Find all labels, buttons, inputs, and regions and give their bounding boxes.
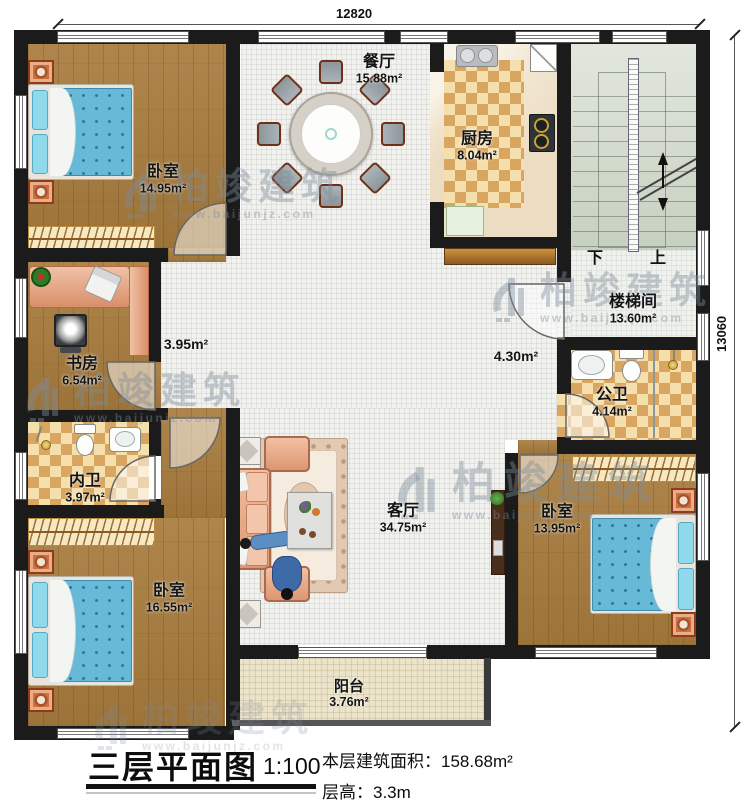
computer-monitor	[54, 314, 87, 347]
person-sitting	[272, 556, 302, 592]
floor-plan-canvas: 柏竣建筑www.baijunjz.com 柏竣建筑www.baijunjz.co…	[0, 0, 750, 812]
dimension-top-value: 12820	[336, 6, 372, 21]
room-label-study: 书房6.54m²	[62, 356, 102, 389]
pillow	[678, 522, 694, 564]
window	[515, 31, 600, 43]
wall	[14, 505, 164, 518]
kitchen-sink-basin	[460, 48, 475, 63]
room-label-bedroom-bl: 卧室16.55m²	[146, 583, 193, 616]
dimension-right-value: 13060	[714, 316, 729, 352]
stair-rail	[628, 58, 639, 252]
sideboard	[444, 248, 556, 265]
floor-bedroom-bl-entry	[161, 408, 226, 518]
person-head	[240, 538, 251, 549]
threshold-study	[149, 362, 161, 410]
shower-divider	[653, 350, 655, 438]
dining-chair	[257, 122, 281, 146]
toilet-bowl	[76, 434, 94, 456]
wall	[430, 237, 571, 248]
window	[400, 31, 448, 43]
pillow	[32, 90, 48, 130]
sink-basin	[578, 355, 605, 375]
wall	[149, 262, 161, 362]
kitchen-sink-basin	[478, 48, 493, 63]
floor-height-label: 层高：	[322, 783, 373, 802]
threshold-bath-public	[557, 394, 571, 437]
teacup	[309, 531, 316, 538]
title-underline-thin	[86, 792, 316, 794]
wall	[557, 337, 710, 350]
shower-head	[668, 360, 678, 370]
pillow	[32, 632, 48, 678]
room-label-living: 客厅34.75m²	[380, 503, 427, 536]
window	[258, 31, 385, 43]
window	[697, 473, 709, 561]
wall	[238, 645, 298, 659]
pillow	[32, 582, 48, 628]
wall	[427, 645, 490, 659]
dimension-line-top	[58, 24, 700, 25]
threshold-stair-hall	[557, 282, 571, 339]
kitchen-corner-counter	[530, 44, 557, 72]
window	[15, 278, 27, 338]
toilet-tank	[74, 424, 96, 434]
fridge	[446, 206, 484, 236]
window	[612, 31, 667, 43]
wardrobe	[572, 456, 696, 482]
room-label-stairwell: 楼梯间13.60m²	[609, 294, 657, 327]
threshold-bedroom-tl	[168, 248, 226, 262]
window	[15, 452, 27, 500]
room-label-bedroom-br: 卧室13.95m²	[534, 504, 581, 537]
window	[15, 570, 27, 654]
window	[57, 728, 189, 739]
window	[57, 31, 189, 43]
plan-title: 三层平面图	[88, 742, 258, 788]
desk-plant	[31, 267, 51, 287]
window	[697, 313, 709, 361]
sofa-cushion	[246, 504, 268, 534]
nightstand	[28, 550, 54, 574]
title-underline	[86, 784, 316, 789]
dining-chair	[319, 60, 343, 84]
balcony-wall	[232, 720, 491, 726]
cabinet-item	[493, 540, 503, 556]
window	[697, 230, 709, 286]
wardrobe	[28, 518, 155, 546]
nightstand	[671, 488, 696, 513]
wall	[226, 408, 240, 730]
floor-area-value: 158.68m²	[441, 752, 513, 771]
nightstand	[28, 60, 54, 84]
flower-accent	[312, 508, 320, 516]
stove-burner	[534, 134, 549, 149]
dining-chair	[319, 184, 343, 208]
stove-burner	[534, 118, 549, 133]
dining-chair	[381, 122, 405, 146]
room-label-balcony: 阳台3.76m²	[329, 678, 369, 710]
cabinet-plant	[490, 492, 504, 505]
sink-basin	[115, 431, 135, 447]
desk-return	[129, 266, 149, 356]
room-label-hall-left: 3.95m²	[164, 336, 208, 352]
plan-scale: 1:100	[263, 753, 321, 780]
room-label-kitchen: 厨房8.04m²	[457, 131, 497, 164]
floor-area-label: 本层建筑面积：	[322, 752, 441, 771]
wall	[147, 408, 168, 420]
wall	[557, 44, 571, 282]
stair-down-label: 下	[587, 244, 603, 268]
threshold-kitchen	[430, 72, 444, 202]
room-label-bedroom-tl: 卧室14.95m²	[140, 164, 187, 197]
wall	[558, 440, 710, 454]
nightstand	[28, 688, 54, 712]
room-label-bath-public: 公卫4.14m²	[592, 387, 632, 420]
balcony-wall	[484, 658, 491, 724]
dimension-tick	[729, 721, 740, 732]
wall	[430, 44, 444, 72]
shower-head	[41, 440, 51, 450]
wall	[226, 44, 240, 256]
pillow	[32, 134, 48, 174]
person-head	[281, 588, 293, 600]
wall	[14, 248, 168, 262]
room-label-hall-right: 4.30m²	[494, 348, 538, 364]
wall	[14, 410, 161, 422]
stair-up-label: 上	[650, 244, 666, 268]
armchair	[264, 436, 310, 472]
monitor-stand	[60, 347, 81, 353]
dimension-tick	[729, 29, 740, 40]
teacup	[299, 528, 306, 535]
floor-height-value: 3.3m	[373, 783, 411, 802]
floor-area-line: 本层建筑面积：158.68m²	[322, 747, 513, 772]
window	[535, 647, 657, 658]
stair-arrow-stem	[662, 164, 664, 188]
room-label-dining: 餐厅15.88m²	[356, 54, 403, 87]
stair-down-arrow	[658, 198, 668, 211]
window	[15, 95, 27, 169]
threshold-bedroom-br	[518, 440, 558, 454]
room-label-bath-private: 内卫3.97m²	[65, 473, 105, 506]
nightstand	[28, 180, 54, 204]
dimension-line-right	[734, 35, 735, 728]
toilet-bowl	[622, 360, 641, 382]
pillow	[678, 568, 694, 610]
wall	[505, 453, 518, 645]
wall	[149, 422, 161, 456]
floor-height-line: 层高：3.3m	[322, 778, 411, 803]
balcony-sliding-door	[298, 647, 427, 658]
nightstand	[671, 612, 696, 637]
bed-sheet	[650, 518, 676, 611]
dining-table-center	[325, 128, 337, 140]
